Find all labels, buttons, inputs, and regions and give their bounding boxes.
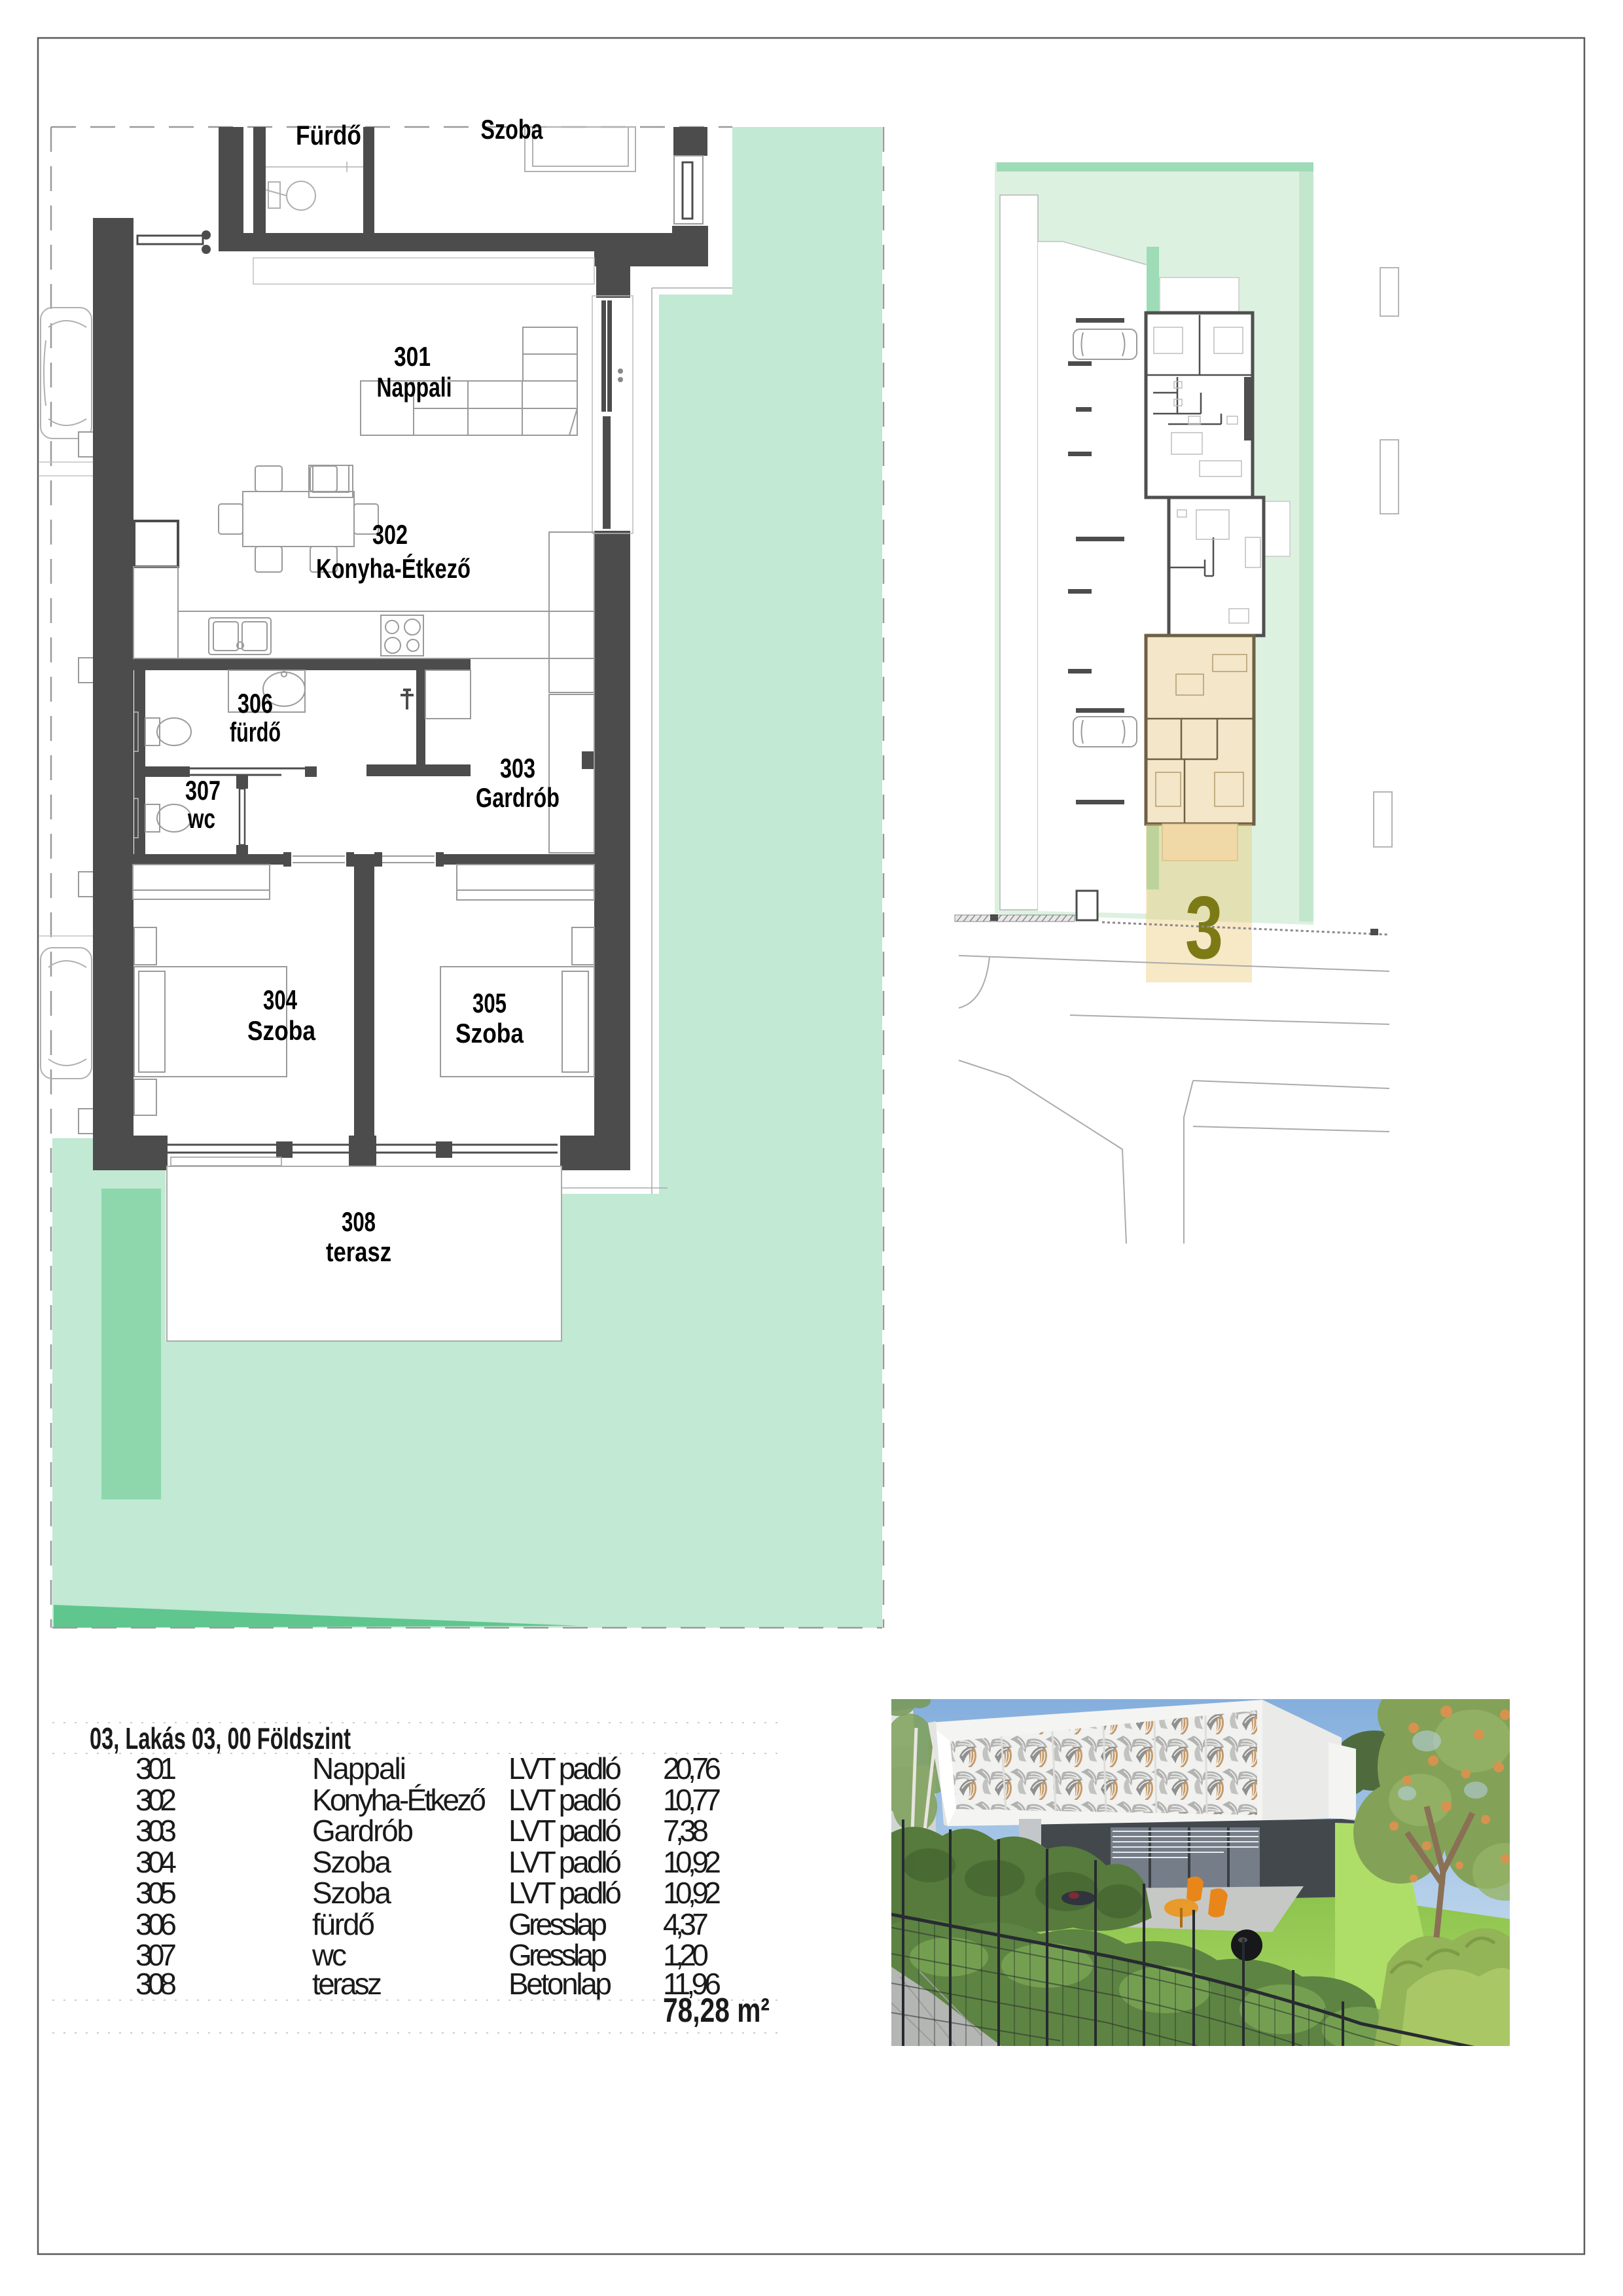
svg-text:302: 302 xyxy=(135,1783,177,1817)
svg-text:10,77: 10,77 xyxy=(663,1783,721,1817)
svg-text:fürdő: fürdő xyxy=(230,717,281,747)
svg-text:Gardrób: Gardrób xyxy=(312,1814,414,1848)
svg-text:306: 306 xyxy=(238,688,273,719)
svg-text:terasz: terasz xyxy=(312,1967,382,2001)
svg-text:303: 303 xyxy=(500,753,535,783)
svg-text:7,38: 7,38 xyxy=(663,1814,709,1848)
svg-text:LVT padló: LVT padló xyxy=(508,1783,622,1817)
svg-text:305: 305 xyxy=(135,1876,177,1910)
svg-text:10,92: 10,92 xyxy=(663,1845,721,1879)
svg-text:LVT padló: LVT padló xyxy=(508,1876,622,1910)
svg-text:Konyha-Étkező: Konyha-Étkező xyxy=(312,1783,486,1817)
svg-text:Szoba: Szoba xyxy=(481,114,543,145)
svg-text:Gresslap: Gresslap xyxy=(508,1907,607,1941)
svg-text:terasz: terasz xyxy=(326,1236,391,1267)
svg-text:wc: wc xyxy=(187,803,215,834)
svg-text:Betonlap: Betonlap xyxy=(508,1967,612,2001)
svg-text:308: 308 xyxy=(342,1206,376,1237)
svg-text:302: 302 xyxy=(372,519,408,550)
svg-text:301: 301 xyxy=(394,341,431,372)
svg-text:4,37: 4,37 xyxy=(663,1907,709,1941)
svg-text:LVT padló: LVT padló xyxy=(508,1814,622,1848)
svg-text:78,28 m²: 78,28 m² xyxy=(663,1992,770,2030)
svg-text:10,92: 10,92 xyxy=(663,1876,721,1910)
svg-text:LVT padló: LVT padló xyxy=(508,1845,622,1879)
svg-text:303: 303 xyxy=(135,1814,177,1848)
svg-text:03, Lakás 03, 00 Földszint: 03, Lakás 03, 00 Földszint xyxy=(90,1721,351,1755)
svg-text:fürdő: fürdő xyxy=(312,1907,375,1941)
svg-text:Konyha-Étkező: Konyha-Étkező xyxy=(316,553,471,584)
svg-text:307: 307 xyxy=(185,775,221,806)
svg-text:Szoba: Szoba xyxy=(312,1845,391,1879)
svg-text:20,76: 20,76 xyxy=(663,1751,721,1785)
svg-text:306: 306 xyxy=(135,1907,177,1941)
svg-text:Gardrób: Gardrób xyxy=(476,782,560,813)
svg-text:Fürdő: Fürdő xyxy=(296,120,361,151)
svg-text:308: 308 xyxy=(135,1967,177,2001)
svg-text:Szoba: Szoba xyxy=(455,1018,524,1049)
svg-text:304: 304 xyxy=(135,1845,177,1879)
svg-text:Szoba: Szoba xyxy=(312,1876,391,1910)
svg-text:Nappali: Nappali xyxy=(312,1751,406,1785)
svg-text:Szoba: Szoba xyxy=(247,1015,316,1046)
svg-text:304: 304 xyxy=(263,984,297,1015)
svg-text:Nappali: Nappali xyxy=(377,372,452,403)
svg-text:LVT padló: LVT padló xyxy=(508,1751,622,1785)
svg-text:301: 301 xyxy=(135,1751,177,1785)
svg-text:305: 305 xyxy=(473,988,507,1018)
